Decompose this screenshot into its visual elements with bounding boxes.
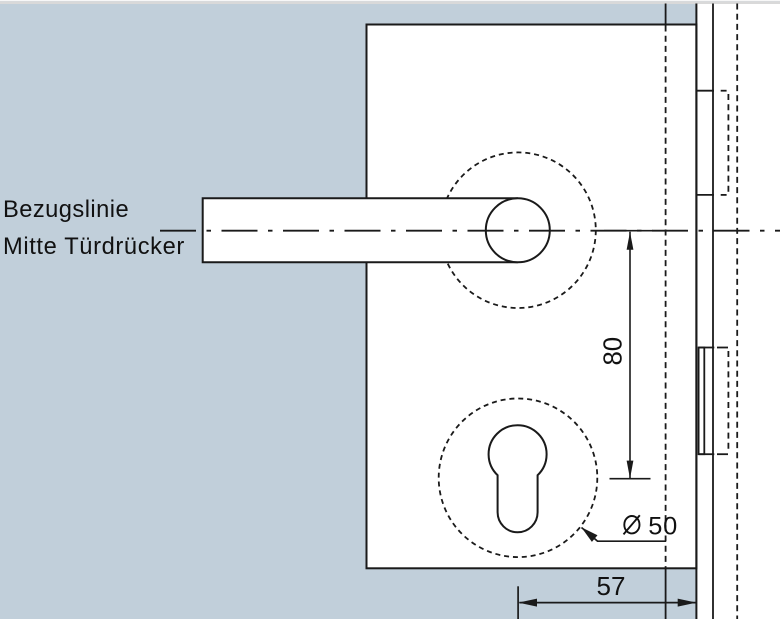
svg-text:Bezugslinie: Bezugslinie	[3, 197, 129, 223]
svg-text:57: 57	[597, 571, 626, 601]
svg-text:80: 80	[600, 337, 628, 366]
svg-text:50: 50	[648, 512, 678, 540]
svg-text:Mitte Türdrücker: Mitte Türdrücker	[3, 234, 185, 260]
